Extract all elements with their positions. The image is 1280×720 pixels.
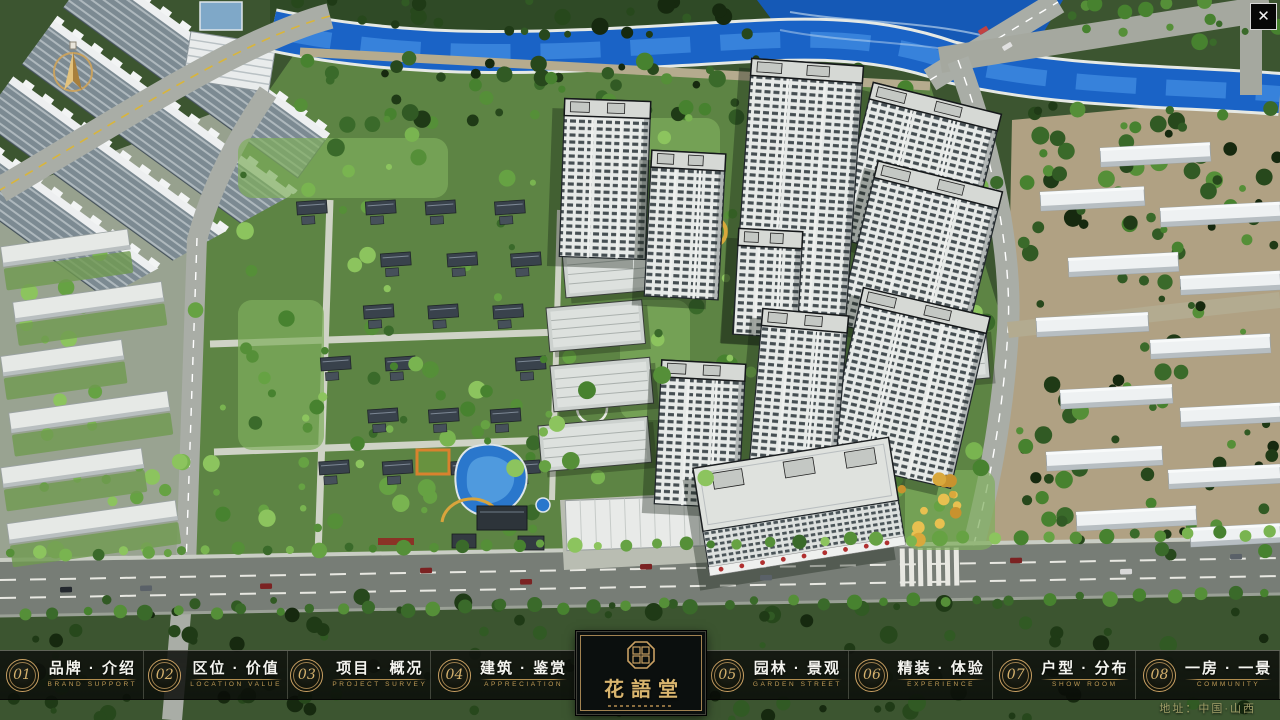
nav-badge-07: 07 <box>999 659 1032 692</box>
nav-sublabel: COMMUNITY <box>1197 682 1260 689</box>
nav-item-floorplan[interactable]: 07 户型 · 分布 SHOW ROOM <box>993 651 1137 699</box>
nav-item-architecture[interactable]: 04 建筑 · 鉴赏 APPRECIATION <box>431 651 575 699</box>
gold-rule <box>332 679 427 680</box>
gold-rule <box>190 679 282 680</box>
nav-sublabel: LOCATION VALUE <box>190 682 282 689</box>
gold-rule <box>48 679 138 680</box>
nav-label: 区位 · 价值 <box>192 661 279 676</box>
gold-rule <box>1041 679 1128 680</box>
brand-title: 花語堂 <box>597 673 685 702</box>
nav-badge-03: 03 <box>290 659 323 692</box>
nav-group-right: 05 园林 · 景观 GARDEN STREET 06 精装 · 体验 EXPE… <box>705 651 1280 699</box>
nav-label: 园林 · 景观 <box>754 661 841 676</box>
address-text: 地址：中国·山西 <box>1159 700 1256 716</box>
compass-north-icon <box>44 38 102 100</box>
nav-label: 户型 · 分布 <box>1041 661 1128 676</box>
nav-sublabel: PROJECT SURVEY <box>332 682 427 689</box>
nav-item-project[interactable]: 03 项目 · 概况 PROJECT SURVEY <box>288 651 432 699</box>
nav-badge-08: 08 <box>1143 659 1176 692</box>
close-button[interactable]: ✕ <box>1250 3 1277 30</box>
residential-tower <box>632 150 726 310</box>
nav-badge-06: 06 <box>855 659 888 692</box>
midrise-slab <box>550 357 659 418</box>
brand-plaque[interactable]: 花語堂 <box>576 631 706 715</box>
masterplan-3d-view[interactable] <box>0 0 1280 720</box>
brand-seal-icon <box>626 640 656 670</box>
nav-sublabel: EXPERIENCE <box>907 682 975 689</box>
nav-label: 建筑 · 鉴赏 <box>480 661 567 676</box>
midrise-slab <box>546 299 651 358</box>
app-window: ✕ 01 品牌 · 介绍 BRAND SUPPORT 02 区位 · 价值 LO… <box>0 0 1280 720</box>
gold-rule <box>1185 679 1272 680</box>
gold-rule <box>480 679 567 680</box>
nav-badge-04: 04 <box>438 659 471 692</box>
gold-rule <box>753 679 842 680</box>
nav-badge-05: 05 <box>711 659 744 692</box>
nav-badge-02: 02 <box>148 659 181 692</box>
nav-sublabel: APPRECIATION <box>484 682 563 689</box>
nav-sublabel: GARDEN STREET <box>753 682 842 689</box>
nav-label: 项目 · 概况 <box>336 661 423 676</box>
nav-item-garden[interactable]: 05 园林 · 景观 GARDEN STREET <box>705 651 849 699</box>
sales-office <box>417 450 449 474</box>
nav-label: 精装 · 体验 <box>897 661 984 676</box>
nav-item-location[interactable]: 02 区位 · 价值 LOCATION VALUE <box>144 651 288 699</box>
nav-group-left: 01 品牌 · 介绍 BRAND SUPPORT 02 区位 · 价值 LOCA… <box>0 651 575 699</box>
brand-subtext-rule <box>608 705 674 707</box>
nav-label: 一房 · 一景 <box>1185 661 1272 676</box>
nav-sublabel: BRAND SUPPORT <box>48 682 138 689</box>
nav-item-decoration[interactable]: 06 精装 · 体验 EXPERIENCE <box>849 651 993 699</box>
nav-item-community[interactable]: 08 一房 · 一景 COMMUNITY <box>1136 651 1280 699</box>
nav-label: 品牌 · 介绍 <box>49 661 136 676</box>
nav-sublabel: SHOW ROOM <box>1052 682 1118 689</box>
close-icon: ✕ <box>1257 9 1270 24</box>
gold-rule <box>897 679 984 680</box>
nav-item-brand[interactable]: 01 品牌 · 介绍 BRAND SUPPORT <box>0 651 144 699</box>
nav-badge-01: 01 <box>6 659 39 692</box>
